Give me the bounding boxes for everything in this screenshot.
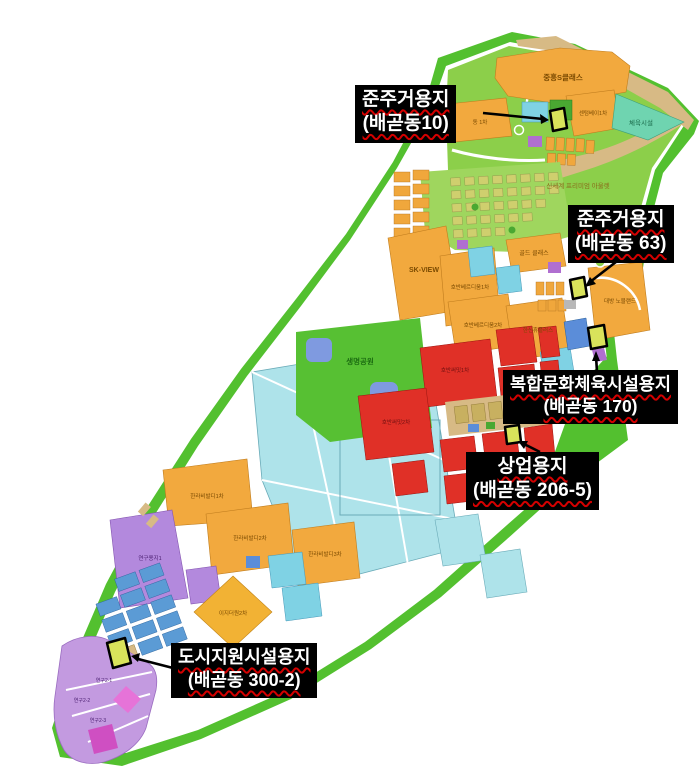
callout-commercial-206-5: 상업용지 (배곧동 206-5) bbox=[466, 452, 599, 510]
label-sk-view: SK-VIEW bbox=[409, 267, 439, 274]
label-summit1: 호반써밋1차 bbox=[441, 366, 469, 374]
highlight-baegot-10 bbox=[550, 108, 567, 131]
callout-semi-residential-63: 준주거용지 (배곧동 63) bbox=[568, 205, 674, 263]
label-halla3: 한라비발디3차 bbox=[308, 550, 341, 558]
callout-line: 준주거용지 bbox=[575, 208, 667, 232]
label-research1: 연구용지1 bbox=[138, 554, 161, 562]
label-ezone: 이지더원2차 bbox=[219, 609, 247, 617]
label-research23: 연구2-3 bbox=[90, 717, 107, 724]
label-sports: 체육시설 bbox=[629, 119, 653, 127]
highlight-baegot-63 bbox=[570, 277, 587, 299]
callout-line: (배곧동10) bbox=[362, 112, 449, 136]
label-jungheung: 중흥S클래스 bbox=[543, 72, 583, 82]
public-parcel bbox=[306, 338, 332, 362]
callout-line: 준주거용지 bbox=[362, 88, 449, 112]
label-dong1cha: 동 1차 bbox=[473, 118, 488, 126]
label-hanshin: 한신휴플러스 bbox=[523, 326, 553, 334]
label-gold-class: 골드 클래스 bbox=[519, 249, 549, 257]
callout-line: (배곧동 170) bbox=[510, 395, 671, 417]
label-hoban1: 호반베르디움1차 bbox=[451, 283, 489, 291]
callout-line: (배곧동 206-5) bbox=[473, 479, 592, 503]
highlight-baegot-170 bbox=[588, 325, 607, 349]
roundabout bbox=[515, 126, 524, 135]
callout-line: (배곧동 63) bbox=[575, 232, 667, 256]
callout-line: 도시지원시설용지 bbox=[178, 646, 310, 669]
label-outlet: 신세계 프리미엄 아울렛 bbox=[546, 181, 609, 190]
callout-culture-sports-170: 복합문화체육시설용지 (배곧동 170) bbox=[503, 370, 678, 424]
label-life-park: 생명공원 bbox=[346, 356, 374, 366]
callout-semi-residential-10: 준주거용지 (배곧동10) bbox=[355, 85, 456, 143]
callout-line: (배곧동 300-2) bbox=[178, 669, 310, 692]
callout-line: 복합문화체육시설용지 bbox=[510, 373, 671, 395]
label-research22: 연구2-2 bbox=[74, 697, 91, 704]
callout-line: 상업용지 bbox=[473, 455, 592, 479]
label-research21: 연구2-1 bbox=[96, 677, 113, 684]
label-centum: 센텀베이1차 bbox=[579, 109, 607, 117]
label-summit2: 호반써밋2차 bbox=[382, 418, 410, 426]
purple-parcel bbox=[528, 136, 542, 147]
label-daebang: 대방 노블랜드 bbox=[604, 297, 636, 305]
label-halla2: 한라비발디2차 bbox=[233, 534, 266, 542]
callout-urban-support-300-2: 도시지원시설용지 (배곧동 300-2) bbox=[171, 643, 317, 698]
land-use-map-page: 중흥S클래스 센텀베이1차 동 1차 체육시설 신세계 프리미엄 아울렛 SK-… bbox=[0, 0, 700, 774]
park-node bbox=[472, 204, 479, 211]
label-halla1: 한라비발디1차 bbox=[190, 492, 223, 500]
park-node bbox=[509, 227, 516, 234]
label-hoban2: 호반베르디움2차 bbox=[464, 321, 502, 329]
